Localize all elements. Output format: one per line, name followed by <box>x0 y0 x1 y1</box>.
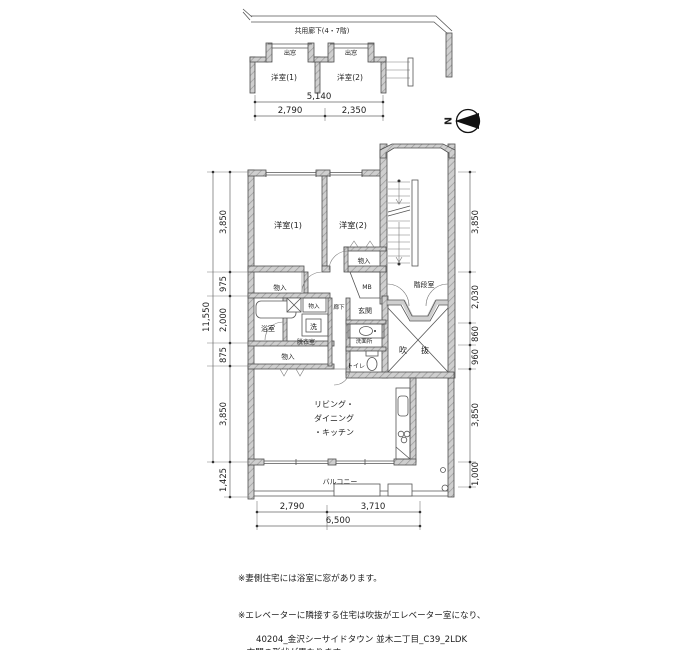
ldk-label-line1: リビング・ <box>314 399 354 409</box>
stair-tower-top-bay <box>380 144 455 158</box>
bathroom-label: 浴室 <box>261 324 275 333</box>
north-arrow-icon: N <box>444 110 480 133</box>
ldk-label-line2: ダイニング <box>314 413 354 423</box>
dim-top-total: 5,140 <box>307 92 332 102</box>
common-corridor-label: 共用廊下(4・7階) <box>295 26 350 35</box>
dim-left-seg5: 3,850 <box>218 402 228 426</box>
bedroom2-window <box>330 171 362 177</box>
dim-left-seg6: 1,425 <box>218 468 228 492</box>
closet-door-mark <box>280 369 288 376</box>
north-letter: N <box>444 117 455 125</box>
left-dimensions: 3,850 975 2,000 875 3,850 1,425 11,550 <box>202 171 250 499</box>
washbasin <box>348 324 384 338</box>
bay-window-label-1: 出窓 <box>284 49 296 57</box>
bedroom1-window <box>266 171 316 177</box>
meter-box-label: MB <box>362 284 372 291</box>
kitchen-counter <box>396 388 410 459</box>
dim-left-seg1: 3,850 <box>218 210 228 234</box>
outer-wall-right-lower <box>448 378 454 497</box>
toilet <box>366 351 378 371</box>
kitchen-sink <box>398 396 408 416</box>
dim-right-seg4: 960 <box>470 349 480 365</box>
dressing-room-label: 脱衣室 <box>297 338 315 346</box>
stair-break-line <box>388 206 410 216</box>
dim-right-seg6: 1,000 <box>470 462 480 486</box>
upper-partial-plan: 共用廊下(4・7階) 出窓 出窓 洋室(1) 洋室(2) <box>243 9 452 93</box>
fixtures <box>254 272 448 496</box>
dim-top-seg2: 2,350 <box>342 106 367 116</box>
ldk-label-line3: ・キッチン <box>314 428 354 437</box>
toilet-label: トイレ <box>347 363 365 370</box>
upper-stair-fragment <box>386 58 413 86</box>
closet-label-bottom: 物入 <box>281 352 295 361</box>
ldk-sliding-window-2 <box>336 459 394 465</box>
dim-left-total: 11,550 <box>202 302 212 332</box>
dim-right-seg5: 3,850 <box>470 403 480 427</box>
closet-label-top: 物入 <box>273 283 287 292</box>
void-label: 吹抜 <box>399 345 443 355</box>
bottom-dimensions: 2,790 3,710 6,500 <box>256 501 422 530</box>
washroom-label: 洗面所 <box>356 337 373 345</box>
closet-label-room2: 物入 <box>358 256 371 265</box>
closet-door-mark <box>350 241 358 247</box>
hallway-label: 廊下 <box>333 303 345 311</box>
room2-label: 洋室(2) <box>339 220 367 230</box>
floor-plan-page: 共用廊下(4・7階) 出窓 出窓 洋室(1) 洋室(2) 5,140 2,790… <box>0 0 700 650</box>
dim-bottom-seg1: 2,790 <box>280 502 305 512</box>
corridor-wall <box>446 33 452 77</box>
dim-right-seg1: 3,850 <box>470 210 480 234</box>
entrance-label: 玄関 <box>358 306 372 315</box>
stair-handrail <box>412 180 418 266</box>
room1-label: 洋室(1) <box>274 220 302 230</box>
dim-top-seg1: 2,790 <box>278 106 303 116</box>
stair-tower-wall-right <box>448 144 455 378</box>
right-dimensions: 3,850 2,030 860 960 3,850 1,000 <box>458 171 480 489</box>
dim-left-seg2: 975 <box>218 276 228 292</box>
stairwell-label: 階段室 <box>414 280 435 289</box>
dim-right-seg3: 860 <box>470 326 480 342</box>
balcony-label: バルコニー <box>323 478 358 486</box>
stair-tower-wall-left <box>380 144 387 304</box>
corridor-end-mark <box>243 9 252 20</box>
note-line-2: ※エレベーターに隣接する住宅は吹抜がエレベーター室になり、 <box>238 610 485 622</box>
dim-left-seg4: 875 <box>218 347 228 363</box>
staircase <box>388 180 418 267</box>
dim-bottom-total: 6,500 <box>326 516 351 526</box>
dim-bottom-seg2: 3,710 <box>361 502 386 512</box>
bay-window-label-2: 出窓 <box>345 49 357 57</box>
ldk-sliding-window-1 <box>264 459 328 465</box>
washer-label: 洗 <box>310 322 317 331</box>
closet-label-small: 物入 <box>308 302 320 310</box>
upper-room1-label: 洋室(1) <box>271 72 297 82</box>
upper-room2-label: 洋室(2) <box>337 72 363 82</box>
common-corridor-band <box>251 16 452 34</box>
drawing-caption: 40204_金沢シーサイドタウン 並木二丁目_C39_2LDK <box>256 633 467 645</box>
balcony-drain <box>441 468 446 473</box>
note-line-1: ※妻側住宅には浴室に窓があります。 <box>238 573 485 585</box>
dim-left-seg3: 2,000 <box>218 308 228 332</box>
main-plan <box>248 144 455 499</box>
closet-door-mark <box>366 241 374 247</box>
dim-right-seg2: 2,030 <box>470 285 480 309</box>
balcony-drain <box>442 485 448 491</box>
closet-door-mark <box>296 369 304 376</box>
pipe-duct <box>287 298 301 312</box>
top-dimensions: 5,140 2,790 2,350 <box>254 92 385 121</box>
outer-wall-left <box>248 170 254 499</box>
note-line-3: 玄関の形状が異なります。 <box>238 647 485 650</box>
